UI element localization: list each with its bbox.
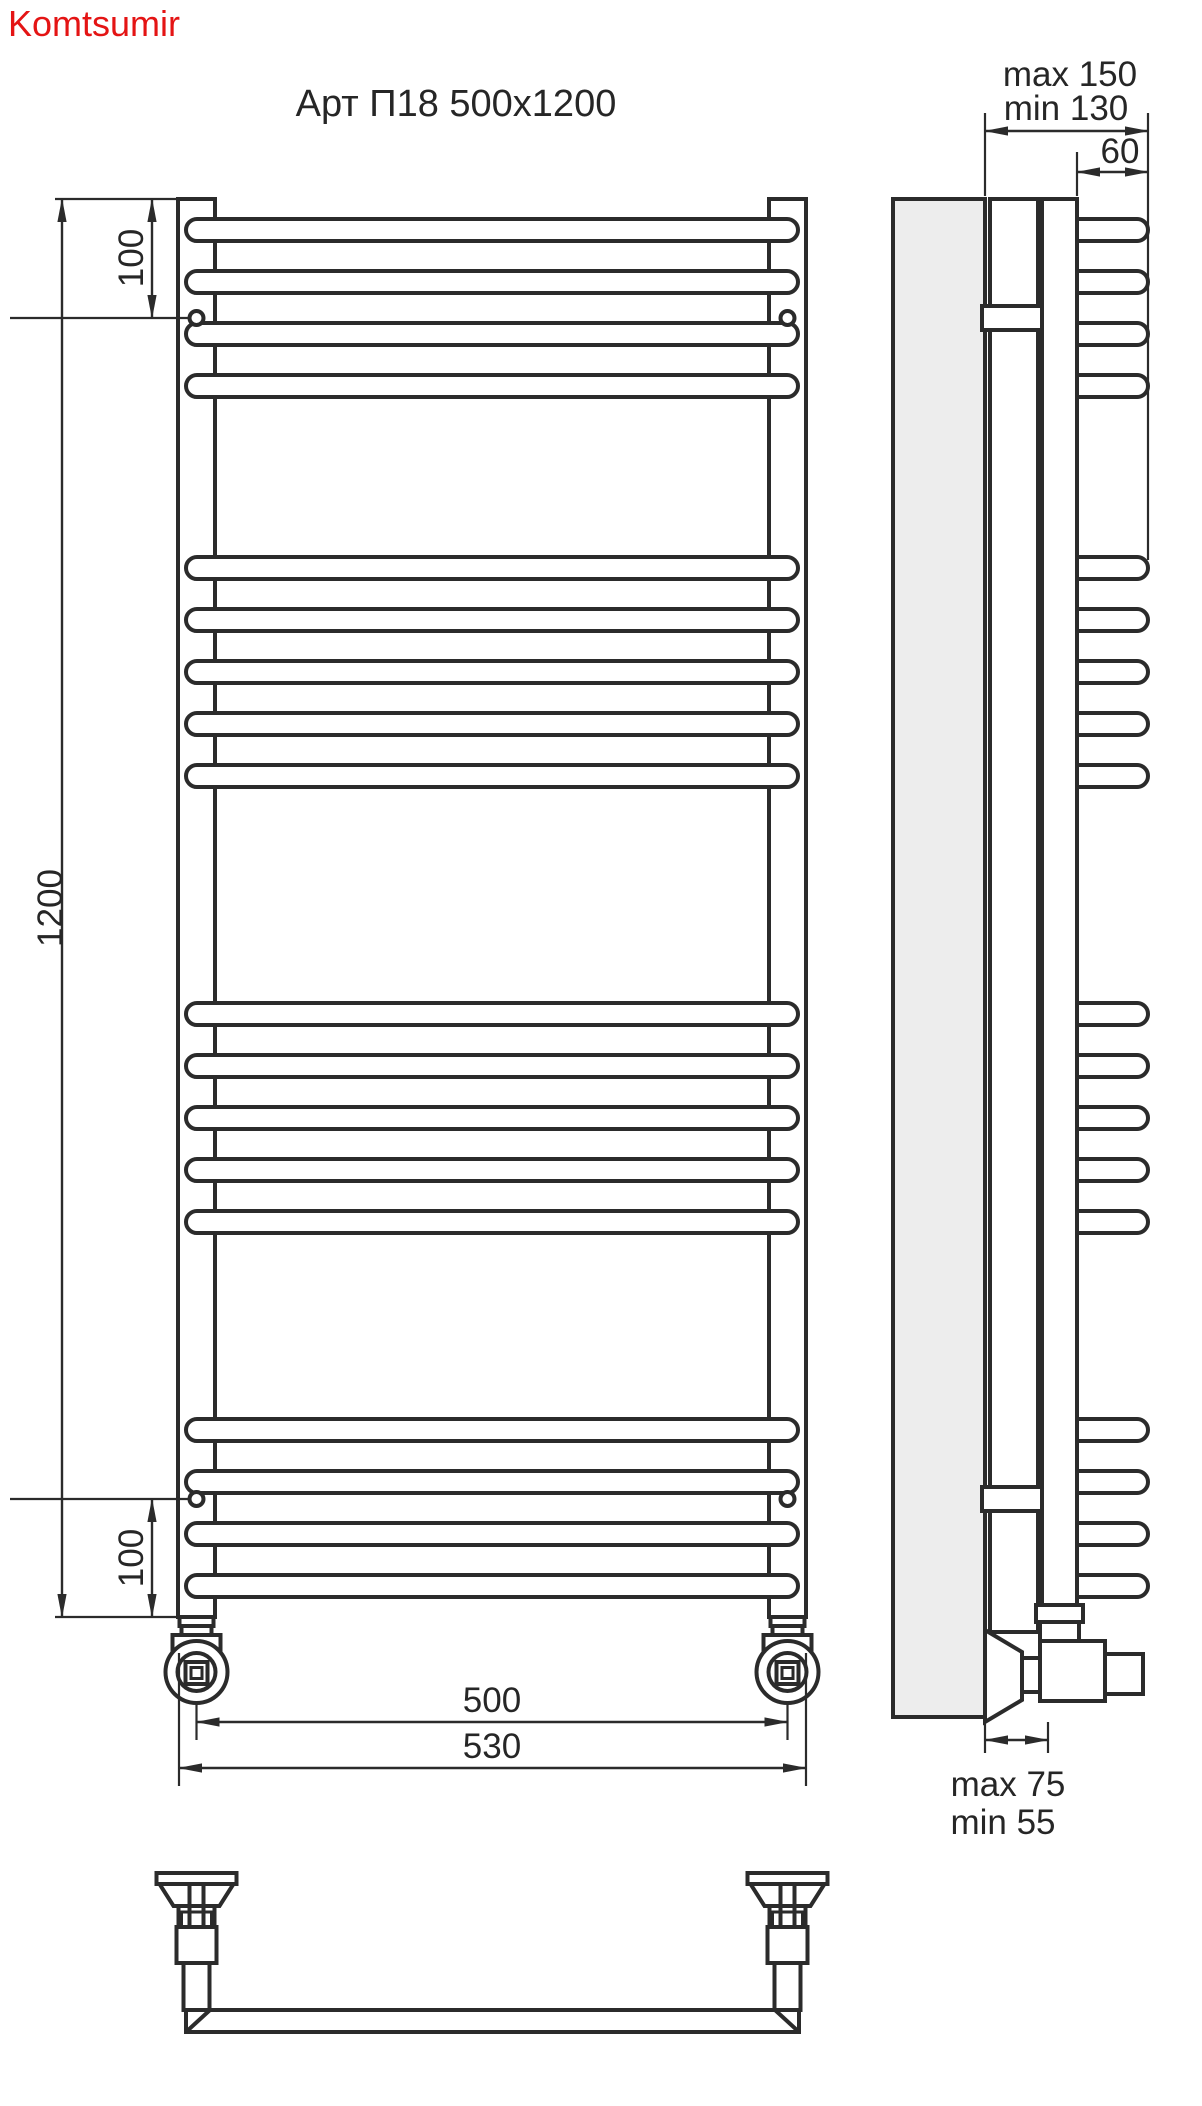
top-wall-bracket bbox=[982, 306, 1042, 330]
front-mount-holes bbox=[190, 311, 795, 1506]
foot-block bbox=[177, 1927, 217, 1963]
side-standoff-column bbox=[990, 199, 1038, 1632]
mount-hole bbox=[190, 311, 204, 325]
bottom-foot bbox=[748, 1873, 828, 2010]
towel-bar-front bbox=[186, 375, 798, 397]
valve-assembly bbox=[757, 1617, 819, 1703]
towel-bar-side bbox=[1077, 1055, 1148, 1077]
towel-bar-side bbox=[1077, 1159, 1148, 1181]
bottom-channel bbox=[186, 2010, 799, 2032]
drawing-page: Komtsumir Арт П18 500х1200 bbox=[0, 0, 1202, 2106]
towel-bar-side bbox=[1077, 1575, 1148, 1597]
dim-label-conn-min: min 55 bbox=[950, 1803, 1055, 1842]
side-union-collar bbox=[1040, 1622, 1079, 1641]
towel-bar-side bbox=[1077, 661, 1148, 683]
valve-spindle-square bbox=[777, 1662, 799, 1684]
towel-bar-side bbox=[1077, 1419, 1148, 1441]
front-view bbox=[166, 199, 819, 1703]
wall-section bbox=[893, 199, 985, 1717]
dim-label-conn-max: max 75 bbox=[951, 1765, 1066, 1804]
side-union-nut bbox=[1036, 1605, 1083, 1622]
technical-drawing: Komtsumir Арт П18 500х1200 bbox=[0, 0, 1202, 2106]
side-valve-body bbox=[1040, 1641, 1105, 1701]
towel-bar-front bbox=[186, 271, 798, 293]
mount-hole bbox=[190, 1492, 204, 1506]
side-view bbox=[893, 199, 1148, 1722]
dim-label-530: 530 bbox=[463, 1727, 521, 1766]
wall-escutcheon bbox=[985, 1630, 1022, 1722]
towel-bar-front bbox=[186, 1003, 798, 1025]
towel-bar-side bbox=[1077, 219, 1148, 241]
towel-bar-front bbox=[186, 219, 798, 241]
towel-bar-front bbox=[186, 557, 798, 579]
side-riser bbox=[1042, 199, 1077, 1605]
dim-label-500: 500 bbox=[463, 1681, 521, 1720]
dim-label-100-bottom: 100 bbox=[112, 1529, 151, 1587]
side-bars bbox=[1077, 219, 1148, 1597]
towel-bar-front bbox=[186, 1211, 798, 1233]
towel-bar-front bbox=[186, 1471, 798, 1493]
front-right-riser bbox=[769, 199, 806, 1617]
foot-cap-flare bbox=[751, 1884, 825, 1906]
towel-bar-front bbox=[186, 323, 798, 345]
towel-bar-side bbox=[1077, 323, 1148, 345]
towel-bar-front bbox=[186, 713, 798, 735]
dim-label-100-top: 100 bbox=[112, 229, 151, 287]
front-bars bbox=[186, 219, 798, 1597]
towel-bar-side bbox=[1077, 1471, 1148, 1493]
bottom-wall-bracket bbox=[982, 1487, 1042, 1511]
towel-bar-side bbox=[1077, 765, 1148, 787]
towel-bar-side bbox=[1077, 1211, 1148, 1233]
towel-bar-front bbox=[186, 1107, 798, 1129]
towel-bar-side bbox=[1077, 375, 1148, 397]
brand-logo: Komtsumir bbox=[8, 3, 180, 44]
bottom-feet bbox=[157, 1873, 828, 2010]
foot-stem-upper bbox=[179, 1906, 215, 1927]
towel-bar-front bbox=[186, 765, 798, 787]
dim-label-60: 60 bbox=[1101, 132, 1140, 171]
foot-stem-upper bbox=[770, 1906, 806, 1927]
towel-bar-front bbox=[186, 661, 798, 683]
side-valve-cap bbox=[1105, 1654, 1143, 1694]
towel-bar-side bbox=[1077, 557, 1148, 579]
valve-assembly bbox=[166, 1617, 228, 1703]
towel-bar-side bbox=[1077, 609, 1148, 631]
bottom-foot bbox=[157, 1873, 237, 2010]
foot-block bbox=[768, 1927, 808, 1963]
towel-bar-front bbox=[186, 1575, 798, 1597]
foot-pipe bbox=[775, 1963, 801, 2010]
foot-pipe bbox=[184, 1963, 210, 2010]
drawing-title: Арт П18 500х1200 bbox=[296, 83, 617, 125]
bottom-view bbox=[157, 1873, 828, 2032]
dim-label-1200: 1200 bbox=[31, 869, 70, 947]
towel-bar-side bbox=[1077, 271, 1148, 293]
towel-bar-side bbox=[1077, 1523, 1148, 1545]
dim-label-wall-min: min 130 bbox=[1004, 89, 1129, 128]
front-left-riser bbox=[178, 199, 215, 1617]
towel-bar-front bbox=[186, 609, 798, 631]
towel-bar-front bbox=[186, 1419, 798, 1441]
towel-bar-front bbox=[186, 1523, 798, 1545]
towel-bar-side bbox=[1077, 1003, 1148, 1025]
towel-bar-front bbox=[186, 1159, 798, 1181]
foot-cap-flare bbox=[160, 1884, 234, 1906]
towel-bar-side bbox=[1077, 1107, 1148, 1129]
mount-hole bbox=[781, 1492, 795, 1506]
valve-spindle-square bbox=[186, 1662, 208, 1684]
mount-hole bbox=[781, 311, 795, 325]
towel-bar-side bbox=[1077, 713, 1148, 735]
towel-bar-front bbox=[186, 1055, 798, 1077]
